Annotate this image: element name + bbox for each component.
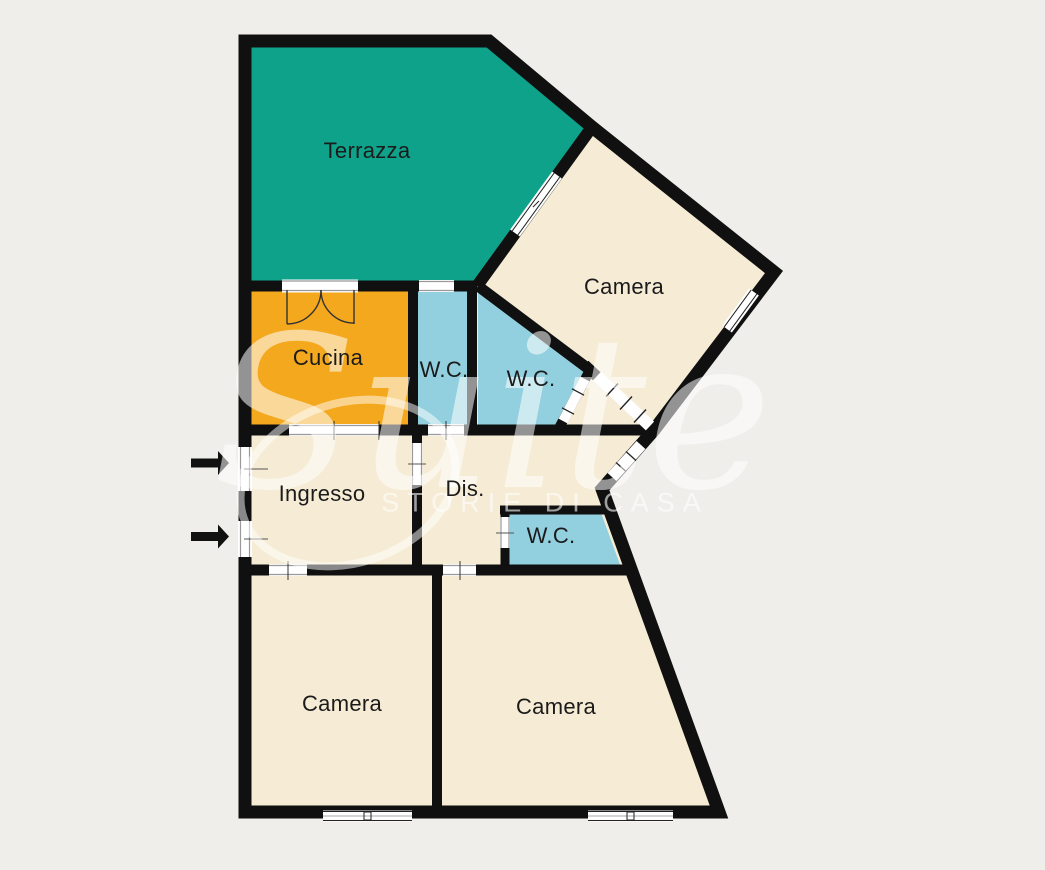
- entrance-arrow-icon: [191, 525, 229, 549]
- room-label-wc-nord: W.C.: [420, 357, 469, 383]
- room-label-cucina: Cucina: [293, 345, 363, 371]
- floor-plan-canvas: Suite STORIE DI CASA Terrazza Camera Cuc…: [0, 0, 1045, 870]
- room-label-terrazza: Terrazza: [324, 138, 411, 164]
- room-label-camera-sudovest: Camera: [302, 691, 382, 717]
- floor-plan-drawing: [0, 0, 1045, 870]
- window-camera-sudest: [588, 812, 673, 821]
- entrance-arrow-icon: [191, 451, 229, 475]
- window-camera-sudovest: [323, 812, 412, 821]
- room-label-wc-sud: W.C.: [527, 523, 576, 549]
- room-label-disimpegno: Dis.: [445, 476, 484, 502]
- room-label-ingresso: Ingresso: [279, 481, 366, 507]
- room-label-camera-sudest: Camera: [516, 694, 596, 720]
- room-label-camera-nordest: Camera: [584, 274, 664, 300]
- room-label-wc-centro: W.C.: [507, 366, 556, 392]
- door-wc-nord: [419, 282, 454, 291]
